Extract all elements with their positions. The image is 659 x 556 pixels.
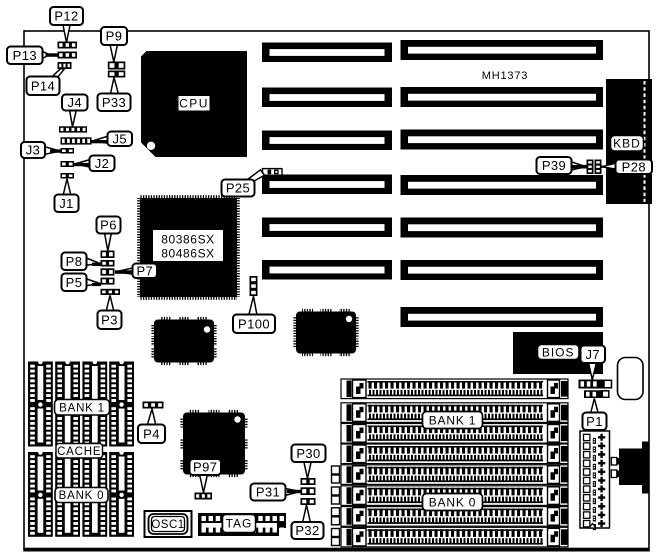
svg-text:80386SX: 80386SX	[161, 233, 215, 247]
svg-text:P31: P31	[256, 485, 280, 500]
svg-text:P4: P4	[143, 426, 160, 441]
svg-text:P6: P6	[100, 218, 117, 233]
svg-text:P3: P3	[101, 312, 118, 327]
svg-text:P30: P30	[296, 446, 320, 461]
svg-text:P14: P14	[31, 78, 55, 93]
svg-text:BANK 0: BANK 0	[429, 495, 477, 509]
svg-text:TAG: TAG	[226, 517, 253, 531]
svg-text:BIOS: BIOS	[542, 345, 575, 359]
svg-text:KBD: KBD	[613, 137, 641, 151]
svg-text:P97: P97	[193, 460, 217, 475]
svg-text:P8: P8	[66, 254, 83, 269]
svg-text:J5: J5	[113, 131, 128, 146]
svg-text:P12: P12	[54, 9, 78, 24]
svg-text:OSC1: OSC1	[151, 519, 184, 531]
svg-text:P1: P1	[586, 414, 603, 429]
svg-text:P25: P25	[226, 181, 250, 196]
svg-text:J4: J4	[68, 95, 83, 110]
svg-text:P7: P7	[136, 263, 153, 278]
svg-text:BANK 0: BANK 0	[59, 490, 105, 502]
svg-text:P100: P100	[238, 316, 270, 331]
svg-text:CPU: CPU	[179, 97, 209, 111]
svg-text:J2: J2	[95, 156, 110, 171]
svg-text:80486SX: 80486SX	[161, 247, 215, 261]
svg-text:P28: P28	[622, 159, 646, 174]
svg-text:P5: P5	[66, 275, 83, 290]
svg-text:BANK 1: BANK 1	[59, 402, 105, 414]
svg-text:BANK 1: BANK 1	[429, 413, 477, 427]
svg-text:J3: J3	[26, 143, 41, 158]
svg-text:P32: P32	[295, 523, 319, 538]
svg-text:P33: P33	[102, 95, 126, 110]
svg-text:MH1373: MH1373	[482, 70, 528, 82]
svg-text:P13: P13	[13, 48, 37, 63]
svg-text:J1: J1	[59, 196, 74, 211]
svg-text:P39: P39	[542, 158, 566, 173]
svg-text:P9: P9	[106, 29, 123, 44]
svg-text:CACHE: CACHE	[57, 446, 101, 458]
svg-text:J7: J7	[586, 347, 601, 362]
